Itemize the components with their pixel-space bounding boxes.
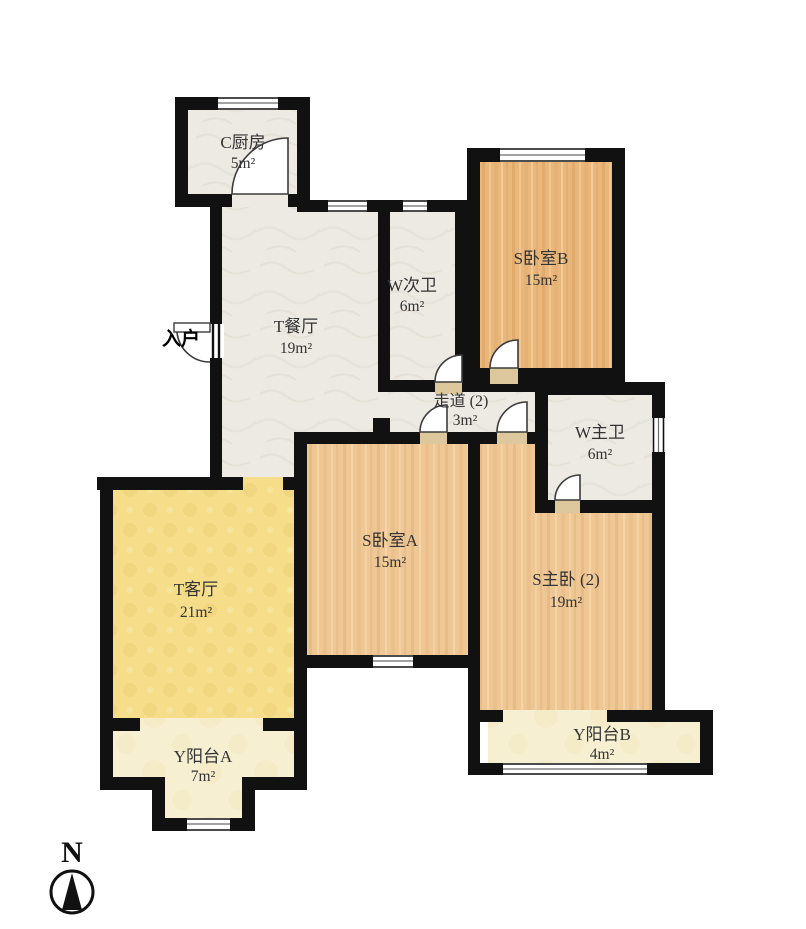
bedroomA-label: S卧室A [362,531,418,550]
master-door-gap [497,432,527,444]
bath-master-window [652,418,665,452]
dining-label: T餐厅 [274,317,318,336]
bath2-label: W次卫 [387,276,437,295]
kitchen-label: C厨房 [220,133,265,152]
kitchen-door-gap [232,194,288,207]
master-label: S主卧 (2) [532,570,600,589]
entrance-label: 入户 [162,327,200,350]
bedroomB-window [500,148,585,162]
floor-plan-page: C厨房 5m² T餐厅 19m² W次卫 6m² S卧室B 15m² 走道 (2… [0,0,806,929]
living-label: T客厅 [174,580,218,599]
bath-master-label: W主卫 [575,423,625,442]
compass-n-letter: N [61,836,83,869]
living-balconyA-opening [140,718,263,731]
bath2-window [403,200,427,212]
bedroomA-window [373,655,413,668]
balconyB-window [503,763,647,775]
balconyA-label: Y阳台A [174,747,233,766]
bedroomA-door-gap [420,432,447,444]
bedroomB-label: S卧室B [514,249,569,268]
kitchen-window [218,97,278,110]
bedroomB-area: 15m² [525,272,558,289]
balconyA-window [187,818,230,831]
bath-master-door-gap [555,500,580,513]
bath2-area: 6m² [400,298,425,315]
bedroomA-area: 15m² [374,554,407,571]
corridor-label: 走道 (2) [434,392,489,410]
compass-north-icon: N [51,836,93,913]
corridor-area: 3m² [453,412,478,429]
bath-master-area: 6m² [588,446,613,463]
balconyB-area: 4m² [590,746,615,763]
living-area: 21m² [180,604,213,621]
floor-plan-drawing: C厨房 5m² T餐厅 19m² W次卫 6m² S卧室B 15m² 走道 (2… [0,0,806,929]
master-balconyB-opening [503,710,607,722]
living-dining-opening [243,477,283,490]
bath2-floor [390,212,455,382]
balconyB-label: Y阳台B [573,725,631,744]
dining-window [328,200,367,212]
balconyA-area: 7m² [191,768,216,785]
dining-area: 19m² [280,340,313,357]
master-area: 19m² [550,594,583,611]
kitchen-area: 5m² [231,155,256,172]
